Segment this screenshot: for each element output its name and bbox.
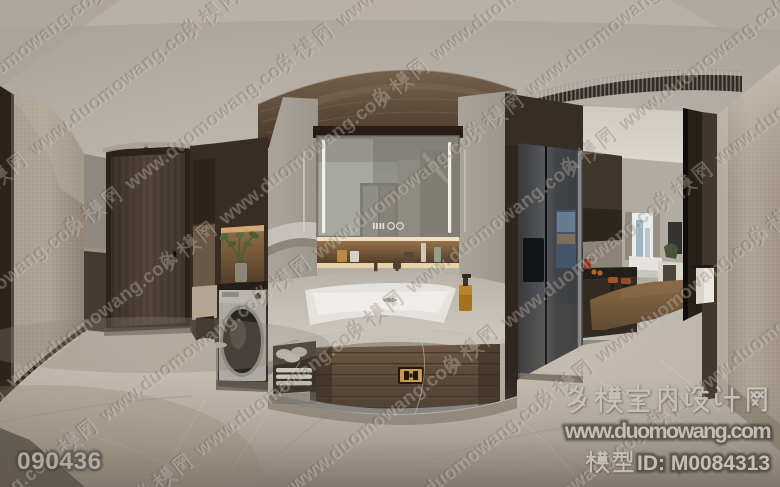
svg-text:www.duomowang.com: www.duomowang.com bbox=[564, 419, 770, 443]
svg-text:ID: M0084313: ID: M0084313 bbox=[637, 452, 770, 475]
svg-text:090436: 090436 bbox=[17, 448, 102, 475]
